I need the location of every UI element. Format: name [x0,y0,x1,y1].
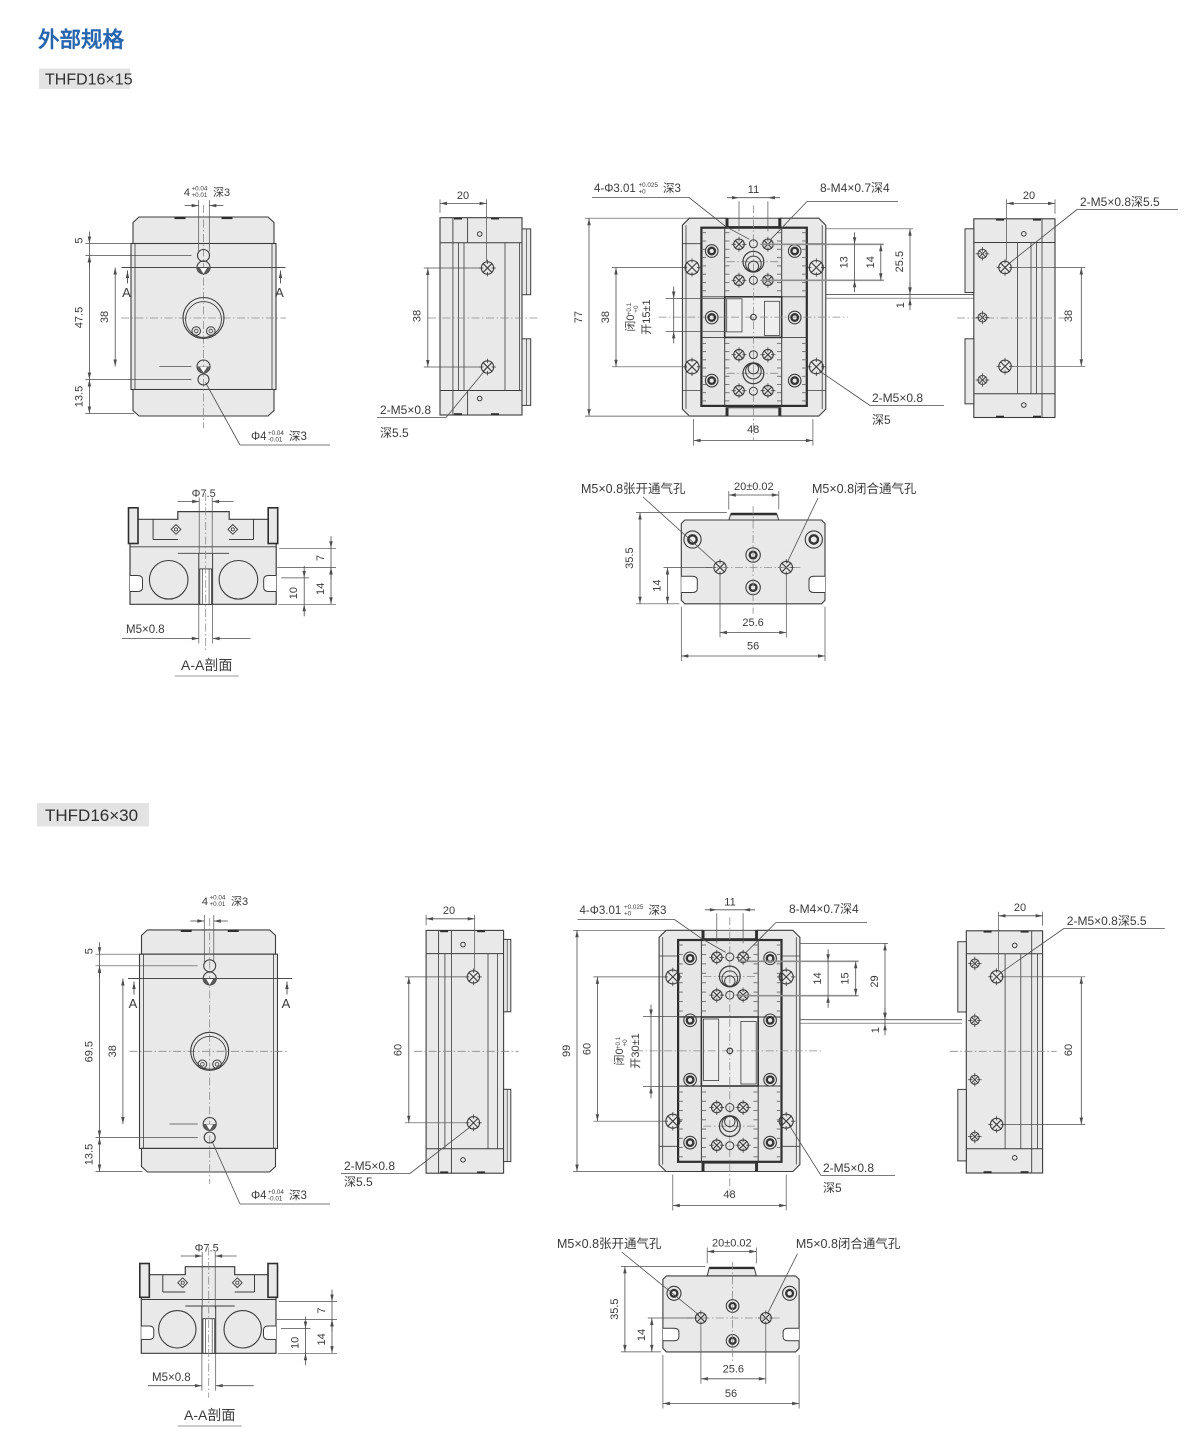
svg-text:13: 13 [839,256,851,268]
svg-text:Φ4: Φ4 [251,431,267,443]
svg-text:+0: +0 [622,1039,629,1047]
svg-text:38: 38 [1063,310,1075,322]
svg-text:深3: 深3 [649,903,667,917]
svg-text:+0: +0 [633,305,640,313]
svg-text:13.5: 13.5 [84,1144,96,1165]
svg-text:35.5: 35.5 [609,1298,621,1319]
svg-text:4: 4 [184,187,190,199]
svg-text:+0.01: +0.01 [210,901,226,908]
svg-text:开30±1: 开30±1 [630,1033,642,1068]
svg-text:闭0: 闭0 [624,315,637,332]
svg-text:8-M4×0.7深4: 8-M4×0.7深4 [820,181,890,195]
svg-text:69.5: 69.5 [84,1041,96,1062]
svg-text:2-M5×0.8: 2-M5×0.8 [823,1161,874,1175]
svg-text:10: 10 [290,1337,302,1349]
svg-text:深3: 深3 [663,181,681,195]
svg-text:M5×0.8张开通气孔: M5×0.8张开通气孔 [581,481,686,496]
svg-text:Φ7.5: Φ7.5 [192,488,216,500]
svg-text:48: 48 [723,1189,735,1201]
svg-text:2-M5×0.8: 2-M5×0.8 [344,1159,395,1173]
svg-text:8-M4×0.7深4: 8-M4×0.7深4 [789,902,859,916]
svg-text:A: A [122,285,131,300]
svg-text:25.6: 25.6 [742,617,763,629]
svg-text:7: 7 [315,555,327,561]
svg-text:深3: 深3 [289,1188,307,1202]
svg-text:14: 14 [636,1329,648,1341]
svg-text:2-M5×0.8深5.5: 2-M5×0.8深5.5 [1067,914,1147,928]
svg-text:38: 38 [600,311,612,323]
svg-text:Φ4: Φ4 [251,1190,267,1202]
svg-text:20: 20 [1023,190,1035,202]
svg-text:深3: 深3 [213,186,230,199]
svg-text:M5×0.8: M5×0.8 [152,1372,191,1384]
svg-text:A-A剖面: A-A剖面 [184,1407,235,1423]
svg-text:深3: 深3 [231,895,248,908]
svg-text:14: 14 [812,972,824,984]
svg-text:Φ7.5: Φ7.5 [195,1243,219,1255]
svg-text:+0: +0 [639,189,647,196]
svg-text:47.5: 47.5 [73,307,85,328]
svg-text:1: 1 [895,302,907,308]
svg-text:35.5: 35.5 [624,547,636,568]
svg-text:深3: 深3 [289,429,307,443]
svg-text:20±0.02: 20±0.02 [734,481,774,493]
svg-text:7: 7 [316,1307,328,1313]
svg-text:4-Φ3.01: 4-Φ3.01 [594,183,636,195]
svg-text:38: 38 [107,1045,119,1057]
svg-text:深5.5: 深5.5 [344,1175,373,1189]
svg-text:外部规格: 外部规格 [38,27,125,52]
svg-text:11: 11 [724,896,735,908]
svg-text:M5×0.8张开通气孔: M5×0.8张开通气孔 [557,1236,662,1251]
svg-text:开15±1: 开15±1 [641,299,653,334]
svg-text:+0.01: +0.01 [192,192,208,199]
svg-text:A: A [275,285,284,300]
svg-text:4-Φ3.01: 4-Φ3.01 [580,905,622,917]
svg-text:77: 77 [573,311,585,323]
svg-text:A: A [282,996,291,1011]
svg-text:13.5: 13.5 [73,386,85,407]
svg-text:20: 20 [1014,902,1026,914]
svg-text:1: 1 [870,1027,882,1033]
svg-text:+0.1: +0.1 [615,1036,622,1049]
svg-text:56: 56 [725,1388,737,1400]
svg-text:20±0.02: 20±0.02 [712,1238,752,1250]
svg-text:10: 10 [288,587,300,599]
svg-text:A-A剖面: A-A剖面 [181,657,232,673]
svg-text:+0: +0 [624,911,632,918]
svg-text:THFD16×15: THFD16×15 [45,72,133,89]
svg-text:14: 14 [865,256,877,268]
svg-text:20: 20 [457,190,469,202]
svg-text:20: 20 [443,905,455,917]
svg-text:深5: 深5 [823,1181,842,1195]
svg-text:60: 60 [393,1044,405,1056]
svg-text:25.5: 25.5 [894,251,906,272]
svg-text:M5×0.8闭合通气孔: M5×0.8闭合通气孔 [812,481,917,496]
svg-text:38: 38 [99,311,111,323]
svg-text:38: 38 [412,310,424,322]
svg-text:M5×0.8闭合通气孔: M5×0.8闭合通气孔 [796,1236,901,1251]
svg-text:56: 56 [747,641,759,653]
svg-text:4: 4 [202,896,208,908]
svg-text:2-M5×0.8: 2-M5×0.8 [872,391,923,405]
svg-text:15: 15 [840,972,852,984]
svg-text:14: 14 [652,579,664,591]
svg-text:-0.01: -0.01 [268,437,283,444]
svg-text:闭0: 闭0 [613,1048,626,1065]
svg-text:-0.01: -0.01 [268,1196,283,1203]
svg-text:+0.1: +0.1 [626,302,633,315]
svg-text:14: 14 [316,1333,328,1345]
svg-text:THFD16×30: THFD16×30 [45,806,138,825]
svg-text:深5.5: 深5.5 [380,426,409,440]
svg-text:5: 5 [84,948,96,954]
svg-text:60: 60 [581,1043,593,1055]
svg-text:60: 60 [1063,1044,1075,1056]
svg-text:48: 48 [747,424,759,436]
svg-text:5: 5 [73,237,85,243]
svg-text:2-M5×0.8深5.5: 2-M5×0.8深5.5 [1080,195,1160,209]
svg-text:深5: 深5 [872,413,891,427]
svg-text:M5×0.8: M5×0.8 [126,624,165,636]
svg-text:11: 11 [748,184,759,196]
svg-text:2-M5×0.8: 2-M5×0.8 [380,403,431,417]
svg-text:25.6: 25.6 [723,1363,744,1375]
svg-text:A: A [129,996,138,1011]
svg-text:29: 29 [869,975,881,987]
svg-text:99: 99 [561,1045,573,1057]
svg-text:14: 14 [315,583,327,595]
